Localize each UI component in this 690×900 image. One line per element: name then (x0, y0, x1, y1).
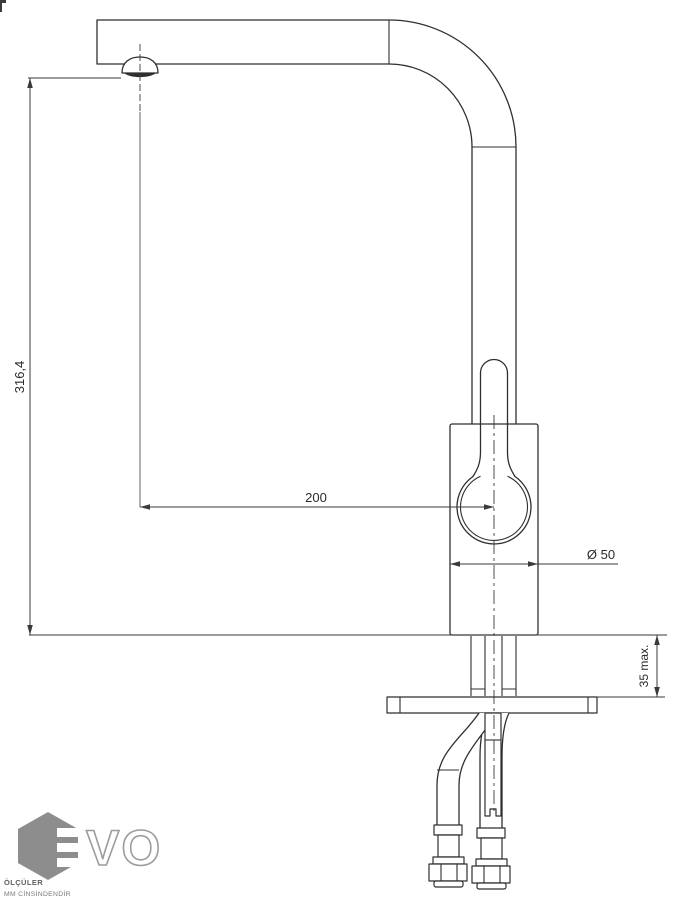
logo-e-bar (57, 843, 84, 852)
fitting-collar (477, 828, 505, 838)
artifact-mark (0, 3, 2, 12)
mount-depth-dimension-label: 35 max. (637, 645, 651, 688)
arrow-right (528, 561, 538, 567)
lever-top-cap (481, 360, 508, 374)
hose-fitting-left (429, 825, 467, 887)
faucet-technical-drawing: 316,4 200 Ø 50 35 max. VO ÖLÇÜLER MM CİN… (0, 0, 690, 900)
footer-line2: MM CİNSİNDENDİR (4, 889, 71, 898)
reach-dimension-label: 200 (305, 490, 327, 505)
pullout-hose-end (485, 713, 501, 816)
mounting-plate-body (387, 697, 597, 713)
lever-left-edge (473, 373, 481, 477)
dimension-diameter: Ø 50 (450, 547, 618, 567)
fitting-neck (481, 838, 502, 859)
logo: VO (18, 812, 162, 880)
arrow-left (140, 504, 150, 510)
arrow-down (27, 625, 33, 635)
pullout-hose-tube (485, 713, 501, 816)
hose-fitting-right (472, 828, 510, 889)
dimension-reach: 200 (140, 490, 494, 510)
mounting-shank (471, 636, 516, 696)
arrow-right (484, 504, 494, 510)
arrow-down (654, 687, 660, 697)
dimension-height: 316,4 (12, 78, 121, 635)
riser-tube (472, 147, 516, 424)
diameter-dimension-label: Ø 50 (587, 547, 615, 562)
footer-line1: ÖLÇÜLER (4, 878, 43, 887)
arrow-left (450, 561, 460, 567)
dimension-mount-depth: 35 max. (597, 635, 665, 697)
logo-e-bar (57, 858, 84, 867)
fitting-neck (438, 835, 459, 857)
arrow-up (27, 78, 33, 88)
scan-artifact (0, 0, 6, 12)
fitting-collar (434, 825, 462, 835)
fitting-cap (434, 881, 463, 887)
logo-e-bar (57, 828, 84, 837)
fitting-hex-nut (472, 866, 510, 883)
mounting-plate (387, 697, 597, 713)
footer-note: ÖLÇÜLER MM CİNSİNDENDİR (4, 878, 71, 898)
fitting-hex-nut (429, 864, 467, 881)
fitting-band (433, 857, 464, 864)
elbow-outer-arc (389, 20, 516, 147)
fitting-cap (477, 883, 506, 889)
arrow-up (654, 635, 660, 645)
lever-right-edge (508, 373, 516, 477)
height-dimension-label: 316,4 (12, 361, 27, 394)
logo-letters: VO (86, 820, 162, 876)
artifact-mark (0, 0, 6, 3)
elbow-inner-arc (389, 64, 472, 147)
faucet-outline (97, 20, 597, 889)
spout-elbow (389, 20, 516, 147)
fitting-band (476, 859, 507, 866)
